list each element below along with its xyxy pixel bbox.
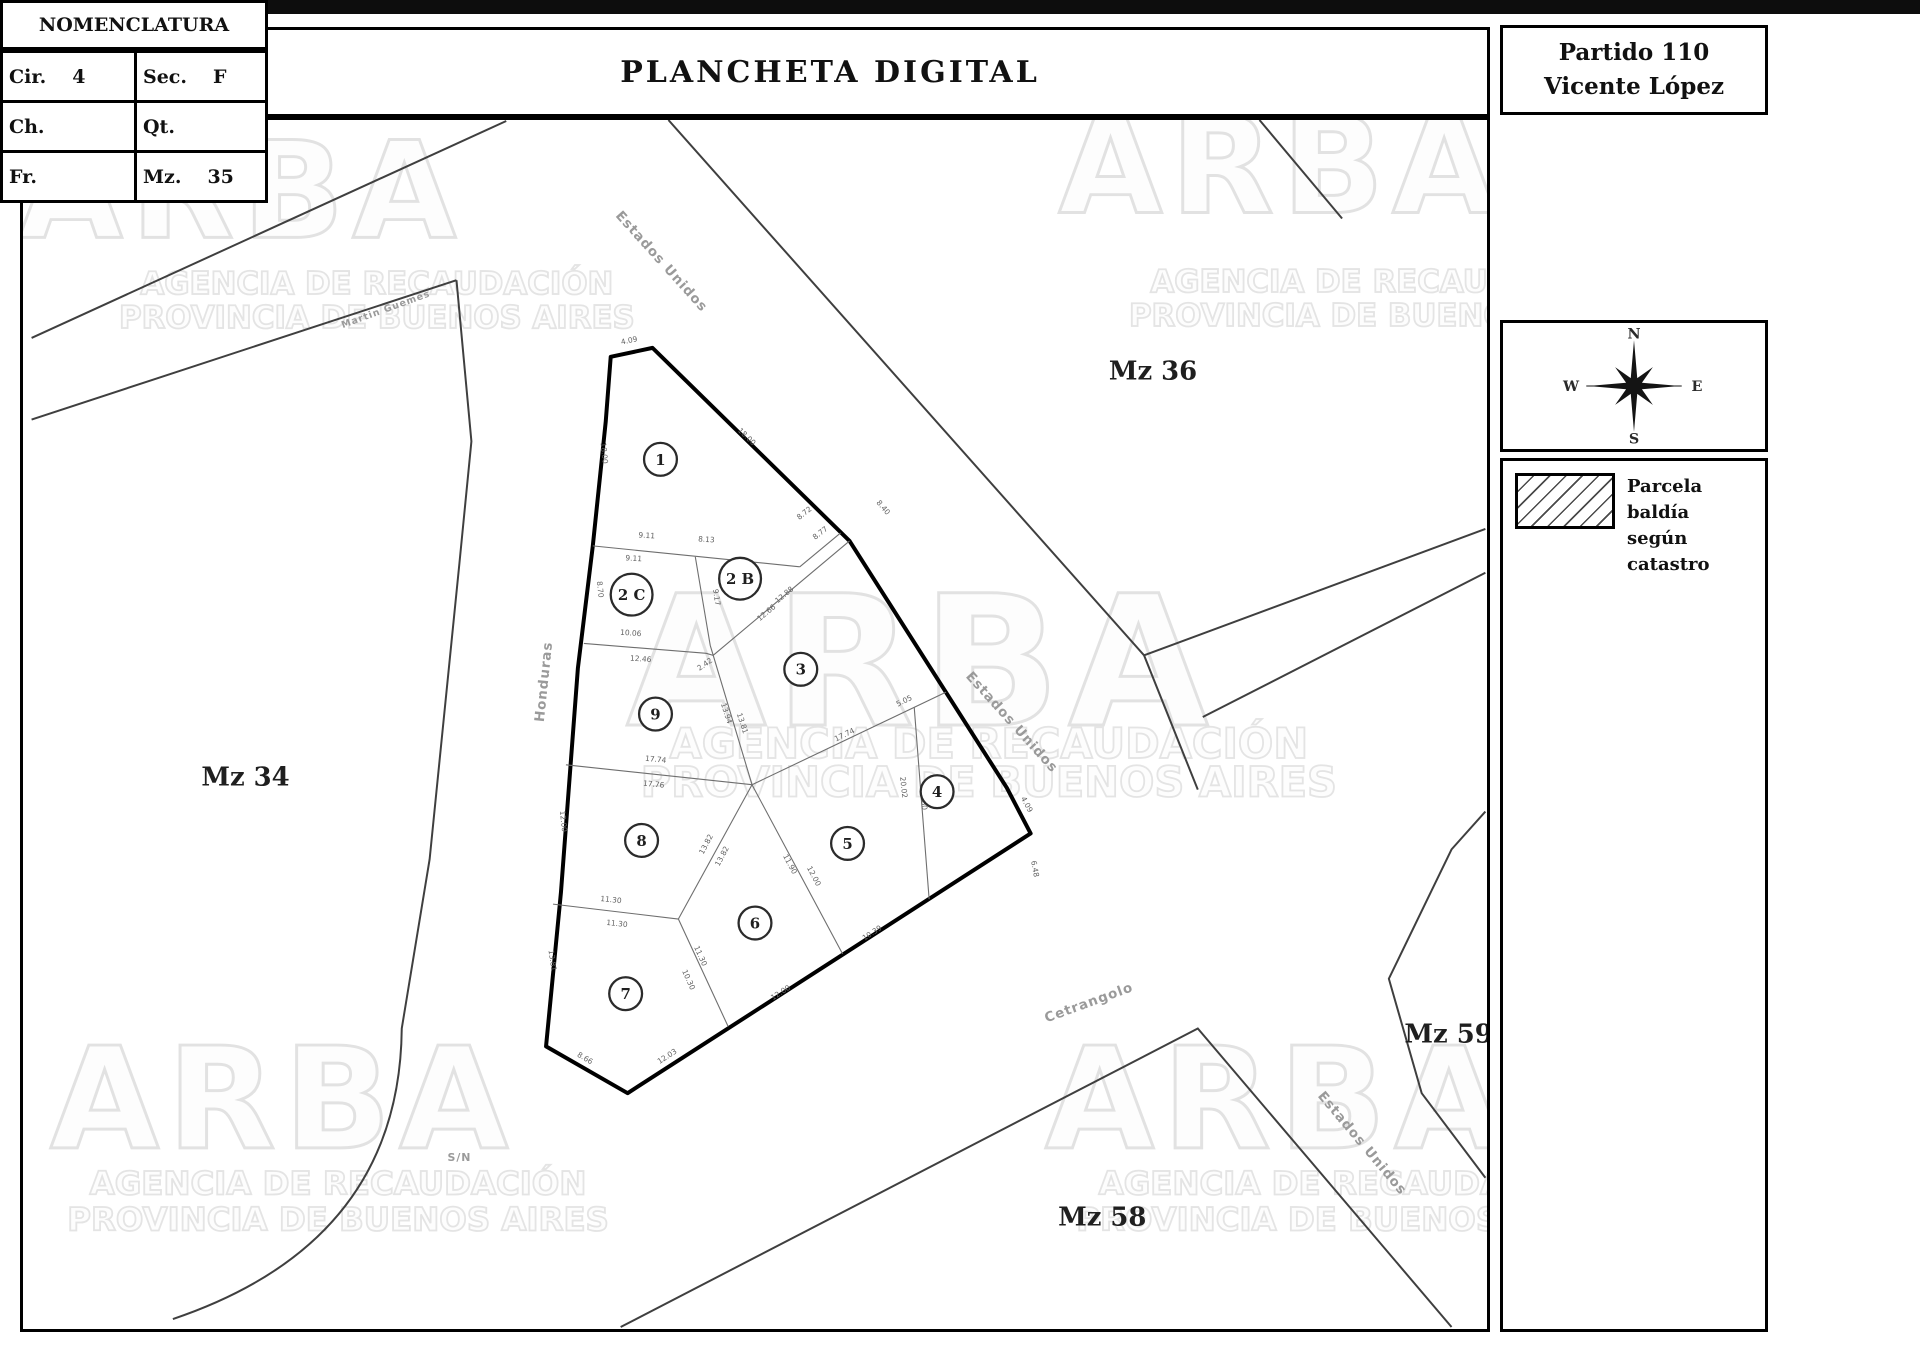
watermark-line: AGENCIA DE RECAUDACIÓN <box>1150 263 1487 300</box>
field-cir-label: Cir. <box>9 66 46 88</box>
compass-letter-w: W <box>1562 379 1580 395</box>
parcel-number-1: 1 <box>655 451 665 469</box>
street-line <box>1203 573 1486 717</box>
watermark-line: PROVINCIA DE BUENOS AIRES <box>67 1200 609 1238</box>
dimension-label: 8.77 <box>811 524 830 541</box>
watermark-layer: ARBAAGENCIA DE RECAUDACIÓNPROVINCIA DE B… <box>23 120 1487 1238</box>
dimension-label: 6.48 <box>1029 860 1041 878</box>
partido-number: Partido 110 <box>1503 36 1765 71</box>
field-ch: Ch. <box>0 100 137 153</box>
field-ch-label: Ch. <box>9 116 45 138</box>
nomenclatura-table: NOMENCLATURA Cir. 4 Sec. F Ch. Qt. Fr. M… <box>0 0 268 205</box>
field-sec-label: Sec. <box>143 66 187 88</box>
field-fr-label: Fr. <box>9 166 37 188</box>
parcel-number-2b: 2 B <box>726 570 754 588</box>
dimension-label: 11.30 <box>606 918 628 929</box>
dimension-label: 12.00 <box>805 865 823 888</box>
dimension-label: 8.70 <box>595 581 606 599</box>
dimension-label: 13.82 <box>713 845 731 868</box>
dimension-label: 10.06 <box>620 628 642 638</box>
parcel-number-7: 7 <box>620 985 630 1003</box>
compass-star-icon <box>1588 340 1680 432</box>
block-label-mz-58: Mz 58 <box>1058 1203 1146 1233</box>
parcel-number-9: 9 <box>650 706 660 724</box>
parcel-boundary <box>553 904 678 919</box>
dimension-label: 11.30 <box>692 944 709 967</box>
dimension-label: 12.46 <box>630 654 652 664</box>
title-box: PLANCHETA DIGITAL <box>170 27 1490 117</box>
dimension-label: 8.40 <box>875 498 893 517</box>
dimension-label: 8.72 <box>795 504 814 521</box>
partido-name: Vicente López <box>1503 70 1765 105</box>
field-qt: Qt. <box>134 100 268 153</box>
block-label-mz-36: Mz 36 <box>1109 357 1197 387</box>
dimension-label: 12.00 <box>769 983 792 1002</box>
compass-letter-e: E <box>1692 379 1703 395</box>
partido-box: Partido 110 Vicente López <box>1500 25 1768 115</box>
field-mz: Mz. 35 <box>134 150 268 203</box>
dimension-label: 9.11 <box>638 530 655 540</box>
parcel-number-4: 4 <box>932 783 942 801</box>
street-label-honduras: Honduras <box>533 641 556 723</box>
watermark-line: AGENCIA DE RECAUDACIÓN <box>1099 1164 1487 1203</box>
legend-line1: Parcela baldía <box>1627 474 1765 526</box>
legend-text: Parcela baldía según catastro <box>1627 474 1765 578</box>
cadastral-map: ARBAAGENCIA DE RECAUDACIÓNPROVINCIA DE B… <box>23 120 1487 1329</box>
dimension-label: 12.00 <box>558 810 569 832</box>
parcel-number-6: 6 <box>750 914 760 932</box>
compass-letter-n: N <box>1627 326 1640 342</box>
compass-box: NESW <box>1500 320 1768 452</box>
watermark-line: PROVINCIA DE BUENOS AIRES <box>1129 298 1487 334</box>
field-fr: Fr. <box>0 150 137 203</box>
parcel-number-2c: 2 C <box>618 586 646 604</box>
compass-letter-s: S <box>1629 431 1639 447</box>
nomenclatura-title: NOMENCLATURA <box>0 0 268 50</box>
top-strip <box>0 0 1920 14</box>
dimension-label: 10.39 <box>861 923 884 942</box>
watermark-word: ARBA <box>50 1018 516 1182</box>
parcel-number-5: 5 <box>842 835 852 853</box>
watermark-line: AGENCIA DE RECAUDACIÓN <box>140 265 613 302</box>
compass-rose-icon: NESW <box>1503 323 1765 449</box>
dimension-label: 4.09 <box>620 334 638 346</box>
watermark-word: ARBA <box>1058 120 1487 245</box>
dimension-label: 8.13 <box>698 534 715 544</box>
page-title: PLANCHETA DIGITAL <box>620 55 1040 90</box>
field-sec: Sec. F <box>134 50 268 103</box>
map-area: ARBAAGENCIA DE RECAUDACIÓNPROVINCIA DE B… <box>20 117 1490 1332</box>
dimension-label: 11.90 <box>781 853 799 876</box>
field-mz-value: 35 <box>207 166 233 188</box>
block-label-mz-59: Mz 59 <box>1404 1019 1487 1049</box>
field-qt-label: Qt. <box>143 116 175 138</box>
parcel-number-8: 8 <box>636 832 646 850</box>
dimension-label: 13.82 <box>697 833 715 856</box>
watermark-line: AGENCIA DE RECAUDACIÓN <box>90 1164 587 1203</box>
dimension-label: 18.00 <box>736 426 758 447</box>
plancheta-digital-sheet: ARBA PLANCHETA DIGITAL ARBAAGENCIA DE RE… <box>0 0 1920 1358</box>
legend-line2: según catastro <box>1627 526 1765 578</box>
field-cir-value: 4 <box>72 66 85 88</box>
legend-box: Parcela baldía según catastro <box>1500 458 1768 1332</box>
dimension-label: 10.30 <box>680 968 697 991</box>
dimension-label: 11.30 <box>600 894 622 905</box>
field-mz-label: Mz. <box>143 166 181 188</box>
parcel-number-3: 3 <box>796 661 806 679</box>
field-sec-value: F <box>213 66 227 88</box>
dimension-label: 13.81 <box>547 949 559 972</box>
street-label-s-n: S/N <box>447 1151 471 1164</box>
field-cir: Cir. 4 <box>0 50 137 103</box>
dimension-label: 9.11 <box>625 553 642 563</box>
block-label-mz-34: Mz 34 <box>201 763 289 793</box>
watermark-line: PROVINCIA DE BUENOS AIRES <box>641 758 1337 807</box>
vacant-parcel-hatch-icon <box>1515 473 1615 529</box>
